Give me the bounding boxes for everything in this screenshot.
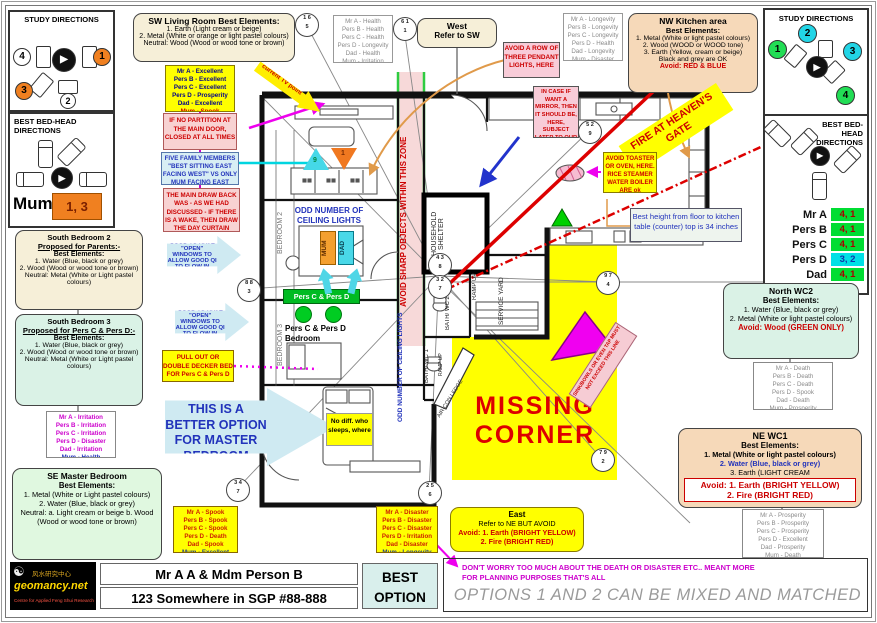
sw2-family-list: Mr A - SpookPers B - SpookPers C - Spook…: [173, 506, 238, 553]
west-family-list: Mr A - HealthPers B - HealthPers C - Hea…: [333, 15, 393, 63]
flying-star-circle: 8 83: [237, 278, 261, 302]
family-row: Pers D - Health: [564, 40, 622, 48]
bedhead-score-value: 3, 2: [831, 253, 864, 266]
nw-kitchen-title: NW Kitchen area: [632, 16, 754, 26]
family-row: Pers D - Excellent: [743, 536, 823, 544]
family-row: Mr A - Spook: [174, 509, 237, 517]
pers-cd-bedroom-label: Pers C & Pers D Bedroom: [285, 324, 361, 343]
yinyang-icon: ☯: [13, 564, 25, 580]
flying-star-circle: 4 38: [428, 253, 452, 277]
family-row: Dad - Death: [754, 397, 832, 405]
nw-family-list: Mr A - LongevityPers B - LongevityPers C…: [563, 13, 623, 61]
sitting-marker-cyan: 9: [303, 148, 329, 172]
missing-corner-line2: CORNER: [460, 421, 610, 450]
east-family-list: Mr A - DisasterPers B - DisasterPers C -…: [376, 506, 438, 553]
study-directions-title: STUDY DIRECTIONS: [10, 15, 113, 24]
logo-chinese-text: 风水研究中心: [32, 568, 71, 578]
mum-best-numbers: 1, 3: [52, 193, 102, 220]
family-row: Pers C - Disaster: [377, 525, 437, 533]
south-bedroom3-box: South Bedroom 3 Proposed for Pers C & Pe…: [15, 314, 143, 406]
flying-star-circle: 1 65: [295, 13, 319, 37]
pull-out-bed-note: PULL OUT OR DOUBLE DECKER BED FOR Pers C…: [162, 350, 234, 382]
geomancy-logo[interactable]: ☯ 风水研究中心 geomancy.net Centre for Applied…: [10, 562, 96, 610]
person-name: Pers C: [792, 239, 827, 251]
blue-arrow: [481, 137, 519, 185]
se-master-sub: Best Elements:: [16, 481, 158, 490]
no-partition-note: IF NO PARTITION AT THE MAIN DOOR, CLOSED…: [163, 113, 237, 150]
main-drawback-note: THE MAIN DRAW BACK WAS - AS WE HAD DISCU…: [163, 188, 240, 232]
se-master-box: SE Master Bedroom Best Elements: 1. Meta…: [12, 468, 162, 560]
nw-kitchen-line: 1. Metal (White or light pastel colours): [632, 35, 754, 42]
family-row: Mr A - Excellent: [166, 68, 234, 76]
sw-living-line: 2. Metal (White or orange or light paste…: [137, 33, 291, 40]
sw-living-line: 1. Earth (Light cream or beige): [137, 26, 291, 33]
family-row: Pers D - Disaster: [47, 438, 115, 446]
east-avoid2: 2. Fire (BRIGHT RED): [454, 537, 580, 546]
family-row: Mum - Irritation: [334, 58, 392, 63]
avoid-pendant-note: AVOID A ROW OF THREE PENDANT LIGHTS, HER…: [503, 42, 560, 78]
bedhead-score-row: Pers D3, 2: [766, 252, 864, 267]
bedhead-score-value: 4, 1: [831, 208, 864, 221]
bed-icon: [38, 140, 53, 168]
family-row: Mum - Longevity: [377, 549, 437, 553]
person-name: Mr A: [803, 209, 827, 221]
flying-star-circle: 2 56: [418, 481, 442, 505]
family-row: Dad - Health: [334, 50, 392, 58]
compass-icon: ▶: [806, 56, 828, 78]
dont-worry-note: DON'T WORRY TOO MUCH ABOUT THE DEATH OR …: [462, 563, 762, 582]
flying-star-circle: 7 92: [591, 448, 615, 472]
flying-star-circle: 9 74: [596, 271, 620, 295]
family-row: Mr A - Health: [334, 18, 392, 26]
best-option-badge: BEST OPTION: [362, 563, 438, 609]
counter-height-note: Best height from floor to kitchen table …: [630, 208, 742, 242]
bedhead-score-value: 4, 1: [831, 238, 864, 251]
north-wc2-sub: Best Elements:: [727, 296, 855, 305]
ne-wc1-sub: Best Elements:: [682, 441, 858, 450]
study-direction-2: 2: [798, 24, 817, 43]
family-row: Mr A - Longevity: [564, 16, 622, 24]
bedhead-score-value: 4, 1: [831, 268, 864, 281]
family-row: Pers B - Irritation: [47, 422, 115, 430]
green-dot: [325, 306, 342, 323]
family-row: Mr A - Death: [754, 365, 832, 373]
nw-kitchen-box: NW Kitchen area Best Elements: 1. Metal …: [628, 13, 758, 93]
avoid-sharp-label: AVOID SHARP OBJECTS WITHIN THIS ZONE: [399, 104, 423, 340]
bed2-proposed: Proposed for Parents:-: [19, 242, 139, 251]
family-row: Pers C - Death: [754, 381, 832, 389]
avoid-toaster-note: AVOID TOASTER OR OVEN, HERE. RICE STEAME…: [603, 152, 657, 193]
study-directions-title: STUDY DIRECTIONS: [765, 14, 867, 23]
bed3-line: 2. Wood (Wood or wood tone or brown): [19, 349, 139, 356]
family-row: Pers B - Death: [754, 373, 832, 381]
family-row: Pers B - Longevity: [564, 24, 622, 32]
family-row: Pers C - Prosperity: [743, 528, 823, 536]
best-option-line2: OPTION: [363, 588, 437, 608]
family-row: Dad - Spook: [174, 541, 237, 549]
se-master-line: Neutral: a. Light cream or beige b. Wood…: [16, 508, 158, 526]
bed3-sub: Best Elements:: [19, 335, 139, 342]
family-row: Mum - Health: [47, 454, 115, 458]
study-direction-3: 3: [15, 82, 33, 100]
east-avoid1: Avoid: 1. Earth (BRIGHT YELLOW): [454, 528, 580, 537]
study-direction-4: 4: [836, 86, 855, 105]
logo-name: geomancy.net: [14, 580, 88, 592]
bed2-line: Neutral: Metal (White or Light pastel co…: [19, 272, 139, 286]
marker-number: 9: [313, 157, 317, 164]
bedhead-directions-title: BEST BED-HEAD DIRECTIONS: [10, 117, 84, 135]
compass-icon: ▶: [52, 48, 76, 72]
bedhead-score-row: Pers C4, 1: [766, 237, 864, 252]
ne-wc1-line: 3. Earth (LIGHT CREAM: [682, 468, 858, 477]
family-row: Pers C - Irritation: [47, 430, 115, 438]
family-row: Pers C - Excellent: [166, 84, 234, 92]
study-direction-3: 3: [843, 42, 862, 61]
compass-icon: ▶: [51, 167, 73, 189]
bedhead-score-value: 4, 1: [831, 223, 864, 236]
client-address: 123 Somewhere in SGP #88-888: [100, 587, 358, 609]
flying-star-circle: 3 47: [226, 478, 250, 502]
family-row: Dad - Excellent: [166, 100, 234, 108]
flying-star-circle: 3 27: [428, 275, 452, 299]
marker-number: 1: [341, 150, 345, 157]
sw-living-line: Neutral: Wood (Wood or wood tone or brow…: [137, 40, 291, 47]
mum-label: Mum: [13, 194, 53, 214]
east-box: East Refer to NE BUT AVOID Avoid: 1. Ear…: [450, 507, 584, 552]
bed2-line: 2. Wood (Wood or wood tone or brown): [19, 265, 139, 272]
ramp-up-label: RAMP UP: [472, 262, 487, 310]
west-title: West: [421, 21, 493, 31]
family-row: Pers B - Prosperity: [743, 520, 823, 528]
desk-icon: [36, 46, 51, 68]
bedhead-score-row: Pers B4, 1: [766, 222, 864, 237]
family-row: Pers D - Longevity: [334, 42, 392, 50]
se-master-line: 2. Water (Blue, black or grey): [16, 499, 158, 508]
family-row: Pers D - Spook: [754, 389, 832, 397]
family-row: Pers D - Death: [174, 533, 237, 541]
north-wc2-line: 1. Water (Blue, black or grey): [727, 305, 855, 314]
compass-icon: ▶: [810, 146, 830, 166]
bedhead-score-row: Mr A4, 1: [766, 207, 864, 222]
mum-bed-label: MUM: [320, 231, 336, 265]
ne-family-list: Mr A - ProsperityPers B - ProsperityPers…: [742, 509, 824, 558]
study-direction-2: 2: [60, 93, 76, 109]
logo-subtitle: Centre for Applied Feng Shui Research: [14, 598, 94, 603]
footer-right-box: DON'T WORRY TOO MUCH ABOUT THE DEATH OR …: [443, 558, 868, 612]
north-wc2-title: North WC2: [727, 286, 855, 296]
best-option-line1: BEST: [363, 568, 437, 588]
family-row: Mum - Excellent: [174, 549, 237, 553]
sw-living-box: SW Living Room Best Elements: 1. Earth (…: [133, 13, 295, 62]
family-row: Dad - Disaster: [377, 541, 437, 549]
nw-kitchen-line: 2. Wood (WOOD or WOOD tone): [632, 42, 754, 49]
service-yard-label: SERVICE YARD: [498, 272, 532, 330]
mirror-note: IN CASE IF WANT A MIRROR, THEN IT SHOULD…: [533, 86, 579, 138]
nw-kitchen-avoid: Avoid: RED & BLUE: [632, 63, 754, 70]
study-direction-4: 4: [13, 48, 31, 66]
odd-lights-label: ODD NUMBER OF CEILING LIGHTS: [288, 206, 370, 225]
bedroom2-label: BEDROOM 2: [277, 196, 292, 270]
bedhead-score-table: Mr A4, 1Pers B4, 1Pers C4, 1Pers D3, 2Da…: [766, 207, 864, 282]
sw-living-family-list: Mr A - ExcellentPers B - ExcellentPers C…: [165, 65, 235, 112]
green-dot: [295, 306, 312, 323]
family-row: Pers D - Irritation: [377, 533, 437, 541]
family-row: Mum - Death: [743, 552, 823, 558]
green-triangle: [552, 209, 572, 226]
ne-wc1-avoid-box: Avoid: 1. Earth (BRIGHT YELLOW) 2. Fire …: [684, 478, 856, 502]
family-row: Mr A - Irritation: [47, 414, 115, 422]
five-family-note: FIVE FAMILY MEMBERS "BEST SITTING EAST F…: [161, 152, 239, 185]
bed3-line: 1. Water (Blue, black or grey): [19, 342, 139, 349]
ramp-up-small-label: RAMP UP: [438, 350, 450, 380]
family-row: Mr A - Disaster: [377, 509, 437, 517]
family-row: Dad - Irritation: [47, 446, 115, 454]
nw-kitchen-line: Black and grey are OK: [632, 56, 754, 63]
client-name: Mr A A & Mdm Person B: [100, 563, 358, 585]
family-row: Mr A - Prosperity: [743, 512, 823, 520]
flying-star-circle: 6 11: [393, 17, 417, 41]
family-row: Pers B - Disaster: [377, 517, 437, 525]
west-box: West Refer to SW: [417, 18, 497, 48]
bed-icon: [16, 172, 44, 187]
bed3-title: South Bedroom 3: [19, 317, 139, 326]
ne-wc1-title: NE WC1: [682, 431, 858, 441]
family-row: Pers C - Health: [334, 34, 392, 42]
nw-kitchen-sub: Best Elements:: [632, 26, 754, 35]
options-note: OPTIONS 1 AND 2 CAN BE MIXED AND MATCHED: [454, 586, 861, 605]
desk-icon: [818, 40, 833, 58]
east-line: Refer to NE BUT AVOID: [454, 519, 580, 528]
bed3-proposed: Proposed for Pers C & Pers D:-: [19, 326, 139, 335]
ne-wc1-box: NE WC1 Best Elements: 1. Metal (White or…: [678, 428, 862, 508]
desk-icon: [58, 80, 78, 94]
person-name: Pers D: [792, 254, 827, 266]
feng-shui-floorplan-page: STUDY DIRECTIONS 4 ▶ 1 3 2 BEST BED-HEAD…: [0, 0, 877, 623]
se-master-title: SE Master Bedroom: [16, 471, 158, 481]
bed2-line: 1. Water (Blue, black or grey): [19, 258, 139, 265]
person-name: Pers B: [792, 224, 827, 236]
family-row: Dad - Prosperity: [743, 544, 823, 552]
bed3-line: Neutral: Metal (White or Light pastel co…: [19, 356, 139, 370]
flying-star-circle: 5 29: [578, 120, 602, 144]
family-row: Mum - Spook: [166, 108, 234, 112]
bed-icon: [812, 172, 827, 200]
ne-wc1-avoid1: Avoid: 1. Earth (BRIGHT YELLOW): [686, 480, 854, 490]
family-row: Pers C - Longevity: [564, 32, 622, 40]
west-sub: Refer to SW: [421, 31, 493, 40]
family-row: Pers C - Spook: [174, 525, 237, 533]
person-name: Dad: [806, 269, 827, 281]
se-master-line: 1. Metal (White or Light pastel colours): [16, 490, 158, 499]
east-title: East: [454, 510, 580, 519]
sitting-marker-orange: 1: [331, 148, 357, 170]
nw-kitchen-line: 3. Earth (Yellow, cream or beige): [632, 49, 754, 56]
ne-wc1-line: 1. Metal (White or light pastel colours): [682, 450, 858, 459]
no-diff-note: No diff. who sleeps, where: [326, 413, 373, 446]
south-bedroom3-family-list: Mr A - IrritationPers B - IrritationPers…: [46, 411, 116, 458]
north-family-list: Mr A - DeathPers B - DeathPers C - Death…: [753, 362, 833, 410]
family-row: Pers B - Health: [334, 26, 392, 34]
study-direction-1: 1: [93, 48, 111, 66]
bed-icon: [79, 172, 107, 187]
family-row: Dad - Longevity: [564, 48, 622, 56]
bed2-title: South Bedroom 2: [19, 233, 139, 242]
north-wc2-box: North WC2 Best Elements: 1. Water (Blue,…: [723, 283, 859, 359]
family-row: Pers B - Excellent: [166, 76, 234, 84]
ne-wc1-line: 2. Water (Blue, black or grey): [682, 459, 858, 468]
family-row: Pers D - Prosperity: [166, 92, 234, 100]
sw-living-title: SW Living Room Best Elements:: [137, 16, 291, 26]
bedhead-score-row: Dad4, 1: [766, 267, 864, 282]
north-wc2-line: 2. Metal (White or light pastel colours): [727, 314, 855, 323]
odd-lights-vertical-label: ODD NUMBER OF CEILING LIGHTS: [397, 306, 419, 428]
bedroom3-label: BEDROOM 3: [277, 308, 292, 382]
south-bedroom2-box: South Bedroom 2 Proposed for Parents:- B…: [15, 230, 143, 310]
dad-bed-label: DAD: [338, 231, 354, 265]
family-row: Pers B - Spook: [174, 517, 237, 525]
north-wc2-avoid: Avoid: Wood (GREEN ONLY): [727, 323, 855, 332]
ne-wc1-avoid2: 2. Fire (BRIGHT RED): [686, 490, 854, 500]
family-row: Mum - Disaster: [564, 56, 622, 61]
bed2-sub: Best Elements:: [19, 251, 139, 258]
family-row: Mum - Prosperity: [754, 405, 832, 410]
